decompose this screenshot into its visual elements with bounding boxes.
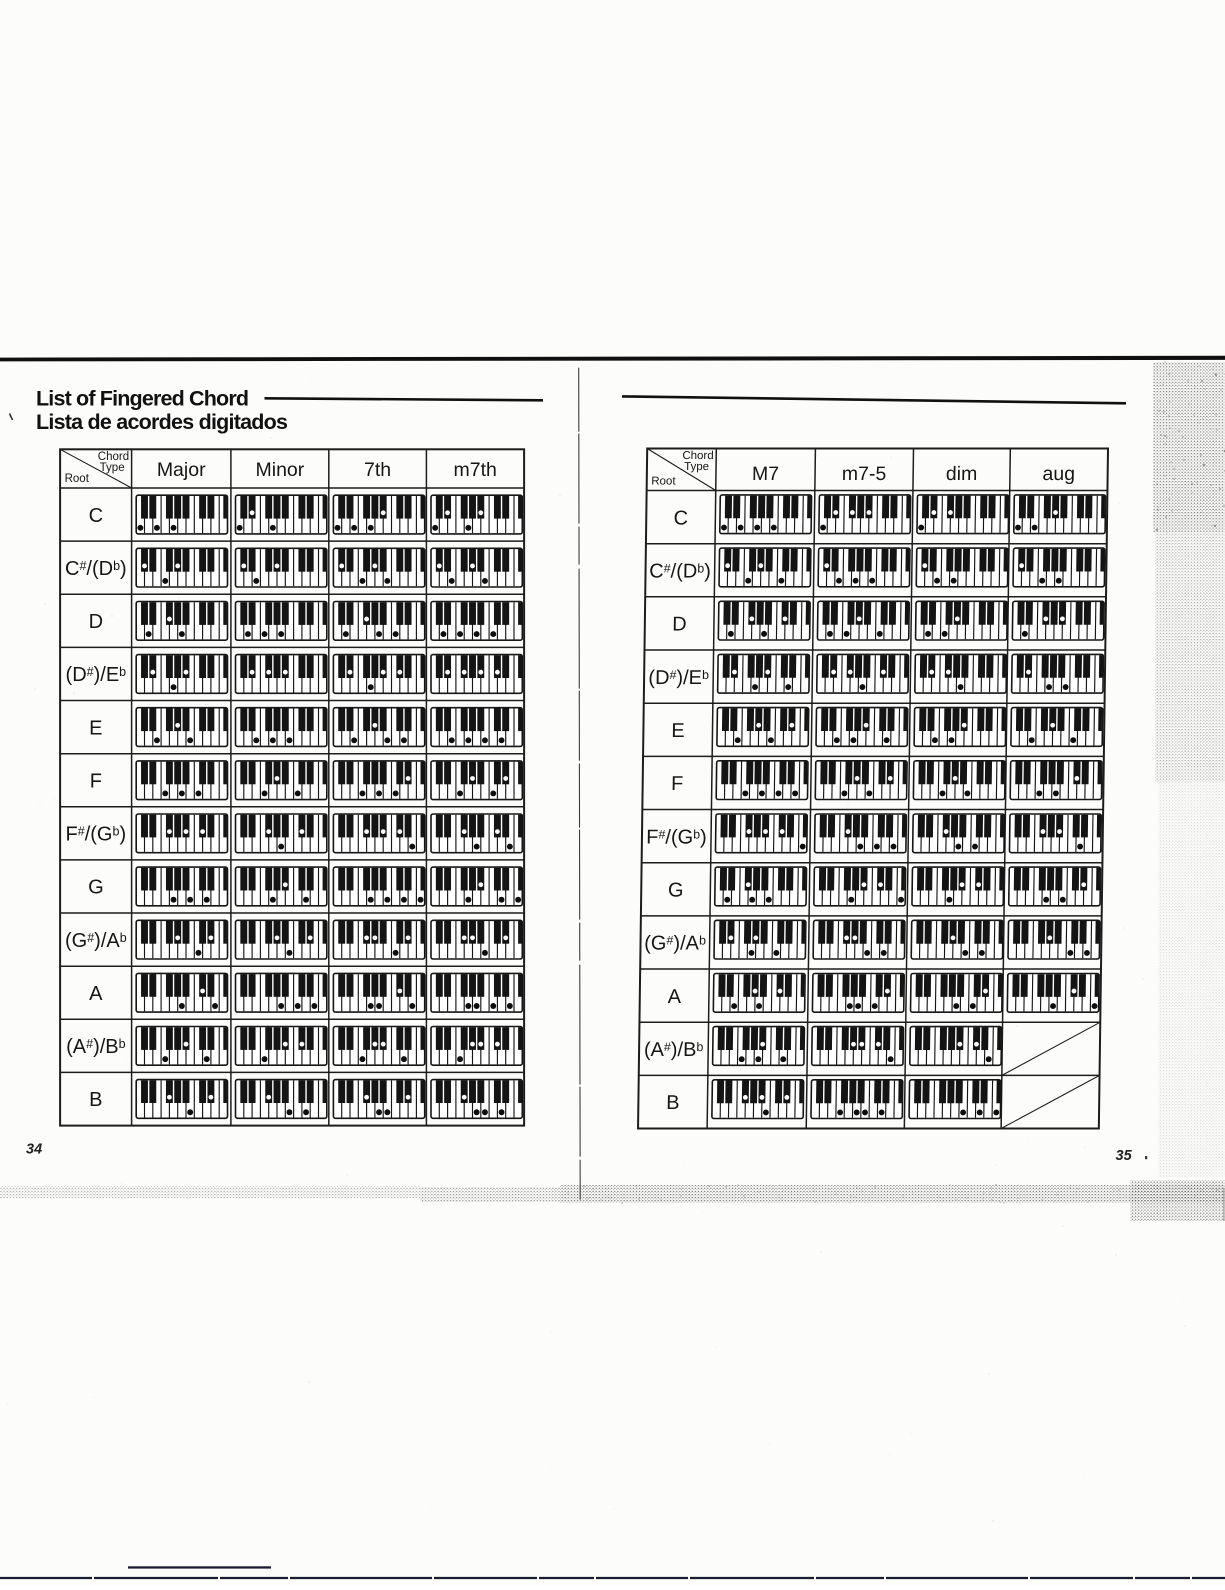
svg-text:G: G <box>88 877 104 899</box>
svg-text:(D#)/Eb: (D#)/Eb <box>66 664 127 686</box>
svg-text:F: F <box>90 770 102 792</box>
svg-text:A: A <box>668 986 682 1008</box>
svg-text:Type: Type <box>684 461 709 473</box>
svg-text:Root: Root <box>651 476 676 488</box>
svg-text:B: B <box>666 1092 680 1114</box>
svg-text:(G#)/Ab: (G#)/Ab <box>644 933 706 955</box>
svg-text:C: C <box>89 505 103 527</box>
svg-text:(A#)/Bb: (A#)/Bb <box>644 1039 704 1061</box>
svg-text:(G#)/Ab: (G#)/Ab <box>65 930 127 952</box>
svg-text:m7-5: m7-5 <box>842 463 887 485</box>
svg-text:34: 34 <box>26 1142 42 1158</box>
svg-text:35: 35 <box>1116 1148 1133 1164</box>
svg-text:A: A <box>89 983 103 1005</box>
svg-text:D: D <box>89 611 103 633</box>
svg-text:Lista de acordes digitados: Lista de acordes digitados <box>36 410 288 434</box>
svg-text:F: F <box>671 773 684 795</box>
svg-text:Major: Major <box>157 459 206 481</box>
svg-text:(D#)/Eb: (D#)/Eb <box>648 667 709 689</box>
svg-text:List of Fingered Chord: List of Fingered Chord <box>36 387 249 411</box>
svg-text:D: D <box>672 614 687 636</box>
svg-text:E: E <box>89 717 102 739</box>
svg-text:7th: 7th <box>364 459 391 481</box>
svg-text:C: C <box>673 507 688 529</box>
svg-text:B: B <box>89 1089 102 1111</box>
svg-text:(A#)/Bb: (A#)/Bb <box>66 1036 126 1058</box>
svg-text:E: E <box>671 720 685 742</box>
svg-text:Minor: Minor <box>256 459 305 481</box>
svg-text:m7th: m7th <box>454 459 497 481</box>
svg-text:Root: Root <box>65 473 90 485</box>
svg-text:aug: aug <box>1042 463 1075 485</box>
svg-text:M7: M7 <box>752 463 779 485</box>
svg-text:dim: dim <box>946 463 978 485</box>
svg-text:G: G <box>668 879 684 901</box>
